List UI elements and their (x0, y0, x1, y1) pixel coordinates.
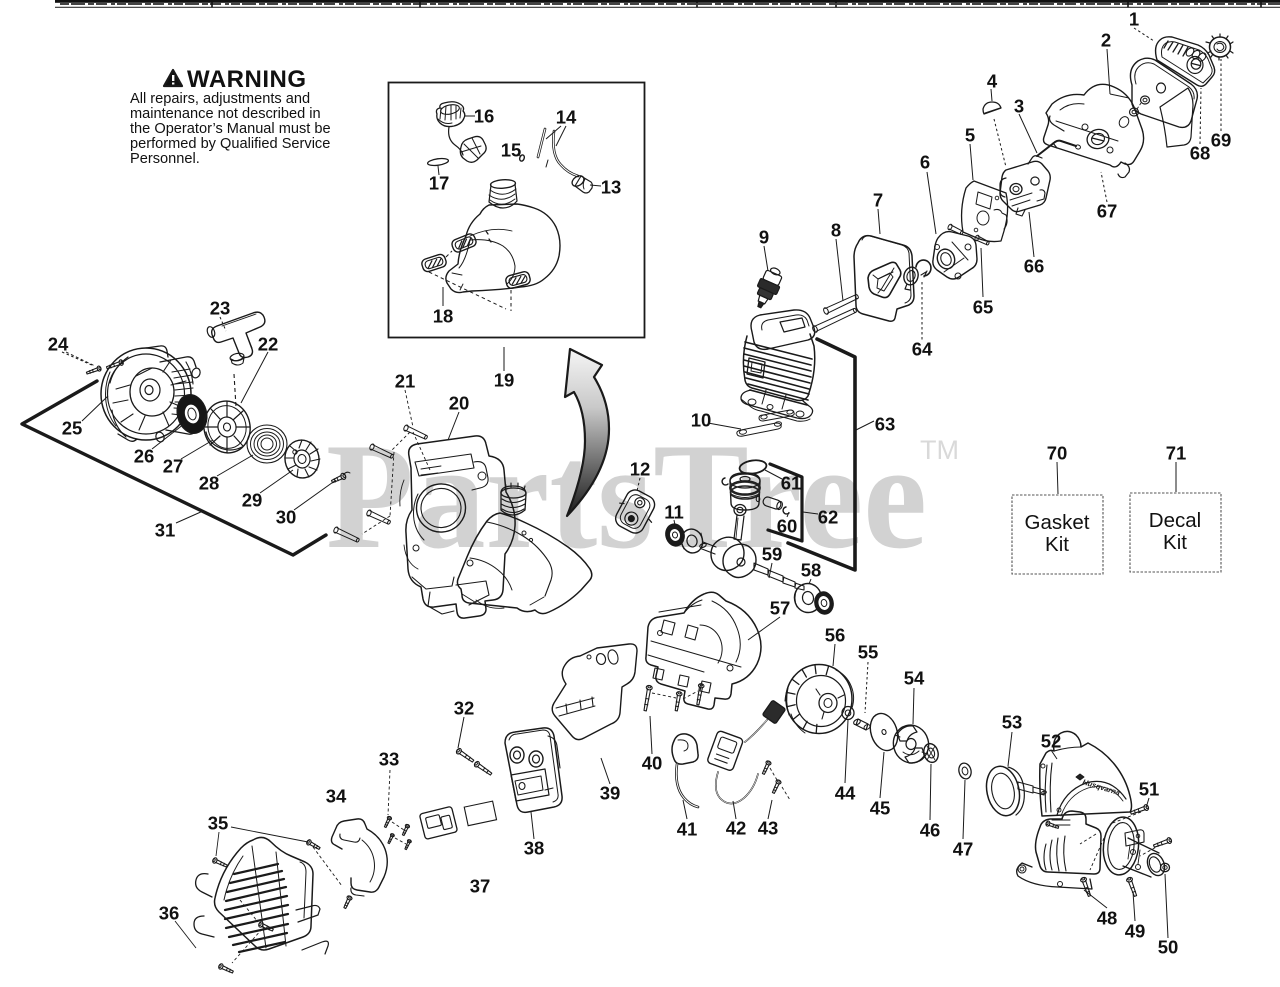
svg-text:24: 24 (48, 334, 69, 355)
svg-text:47: 47 (953, 839, 974, 860)
svg-text:33: 33 (379, 749, 400, 770)
svg-text:maintenance not described in: maintenance not described in (130, 106, 321, 122)
svg-text:27: 27 (163, 456, 184, 477)
svg-text:45: 45 (870, 798, 891, 819)
svg-text:66: 66 (1024, 256, 1045, 277)
svg-text:14: 14 (556, 107, 577, 128)
svg-text:62: 62 (818, 507, 839, 528)
svg-text:40: 40 (642, 753, 663, 774)
svg-text:38: 38 (524, 838, 545, 859)
svg-text:4: 4 (987, 71, 998, 92)
svg-text:56: 56 (825, 625, 846, 646)
svg-text:71: 71 (1166, 443, 1187, 464)
svg-text:Gasket: Gasket (1025, 511, 1090, 534)
svg-text:10: 10 (691, 410, 712, 431)
svg-text:16: 16 (474, 106, 495, 127)
svg-text:35: 35 (208, 813, 229, 834)
svg-text:11: 11 (664, 502, 684, 523)
svg-text:8: 8 (831, 220, 841, 241)
svg-text:5: 5 (965, 125, 975, 146)
svg-text:63: 63 (875, 414, 896, 435)
svg-text:39: 39 (600, 783, 621, 804)
svg-text:36: 36 (159, 903, 180, 924)
svg-text:1: 1 (1129, 9, 1139, 30)
svg-text:50: 50 (1158, 937, 1179, 958)
svg-text:51: 51 (1139, 779, 1160, 800)
svg-text:TM: TM (920, 435, 959, 465)
svg-text:29: 29 (242, 490, 263, 511)
svg-text:42: 42 (726, 818, 747, 839)
svg-text:22: 22 (258, 334, 279, 355)
svg-text:Decal: Decal (1149, 509, 1201, 532)
svg-text:2: 2 (1101, 30, 1111, 51)
svg-text:13: 13 (601, 177, 622, 198)
svg-text:19: 19 (494, 370, 515, 391)
svg-text:60: 60 (777, 516, 798, 537)
svg-text:25: 25 (62, 418, 83, 439)
svg-text:46: 46 (920, 820, 941, 841)
svg-text:43: 43 (758, 818, 779, 839)
svg-text:57: 57 (770, 598, 791, 619)
svg-text:21: 21 (395, 371, 416, 392)
svg-text:59: 59 (762, 544, 783, 565)
svg-text:32: 32 (454, 698, 475, 719)
svg-text:34: 34 (326, 786, 347, 807)
svg-text:Kit: Kit (1163, 531, 1187, 554)
svg-text:37: 37 (470, 876, 491, 897)
svg-text:58: 58 (801, 560, 822, 581)
svg-text:52: 52 (1041, 731, 1062, 752)
svg-text:65: 65 (973, 297, 994, 318)
svg-text:28: 28 (199, 473, 220, 494)
svg-text:49: 49 (1125, 921, 1146, 942)
svg-text:26: 26 (134, 446, 155, 467)
svg-text:performed by Qualified Service: performed by Qualified Service (130, 136, 330, 152)
svg-text:55: 55 (858, 642, 879, 663)
svg-text:68: 68 (1190, 143, 1211, 164)
svg-text:70: 70 (1047, 443, 1068, 464)
svg-text:20: 20 (449, 393, 470, 414)
svg-text:67: 67 (1097, 201, 1118, 222)
svg-text:WARNING: WARNING (187, 66, 307, 93)
svg-text:61: 61 (781, 473, 802, 494)
svg-text:6: 6 (920, 152, 930, 173)
svg-text:All repairs, adjustments and: All repairs, adjustments and (130, 91, 310, 107)
svg-text:64: 64 (912, 339, 933, 360)
svg-text:18: 18 (433, 306, 454, 327)
svg-text:41: 41 (677, 819, 698, 840)
svg-text:12: 12 (630, 459, 651, 480)
svg-text:44: 44 (835, 783, 856, 804)
svg-text:48: 48 (1097, 908, 1118, 929)
svg-text:9: 9 (759, 227, 769, 248)
svg-text:3: 3 (1014, 96, 1024, 117)
svg-text:7: 7 (873, 190, 883, 211)
svg-text:Personnel.: Personnel. (130, 151, 200, 167)
svg-text:31: 31 (155, 520, 176, 541)
svg-text:69: 69 (1211, 130, 1232, 151)
svg-text:the Operator’s Manual must be: the Operator’s Manual must be (130, 121, 331, 137)
svg-text:23: 23 (210, 298, 231, 319)
svg-text:54: 54 (904, 668, 925, 689)
svg-text:15: 15 (501, 140, 522, 161)
svg-text:30: 30 (276, 507, 297, 528)
svg-text:17: 17 (429, 173, 450, 194)
svg-text:Kit: Kit (1045, 533, 1069, 556)
svg-text:53: 53 (1002, 712, 1023, 733)
